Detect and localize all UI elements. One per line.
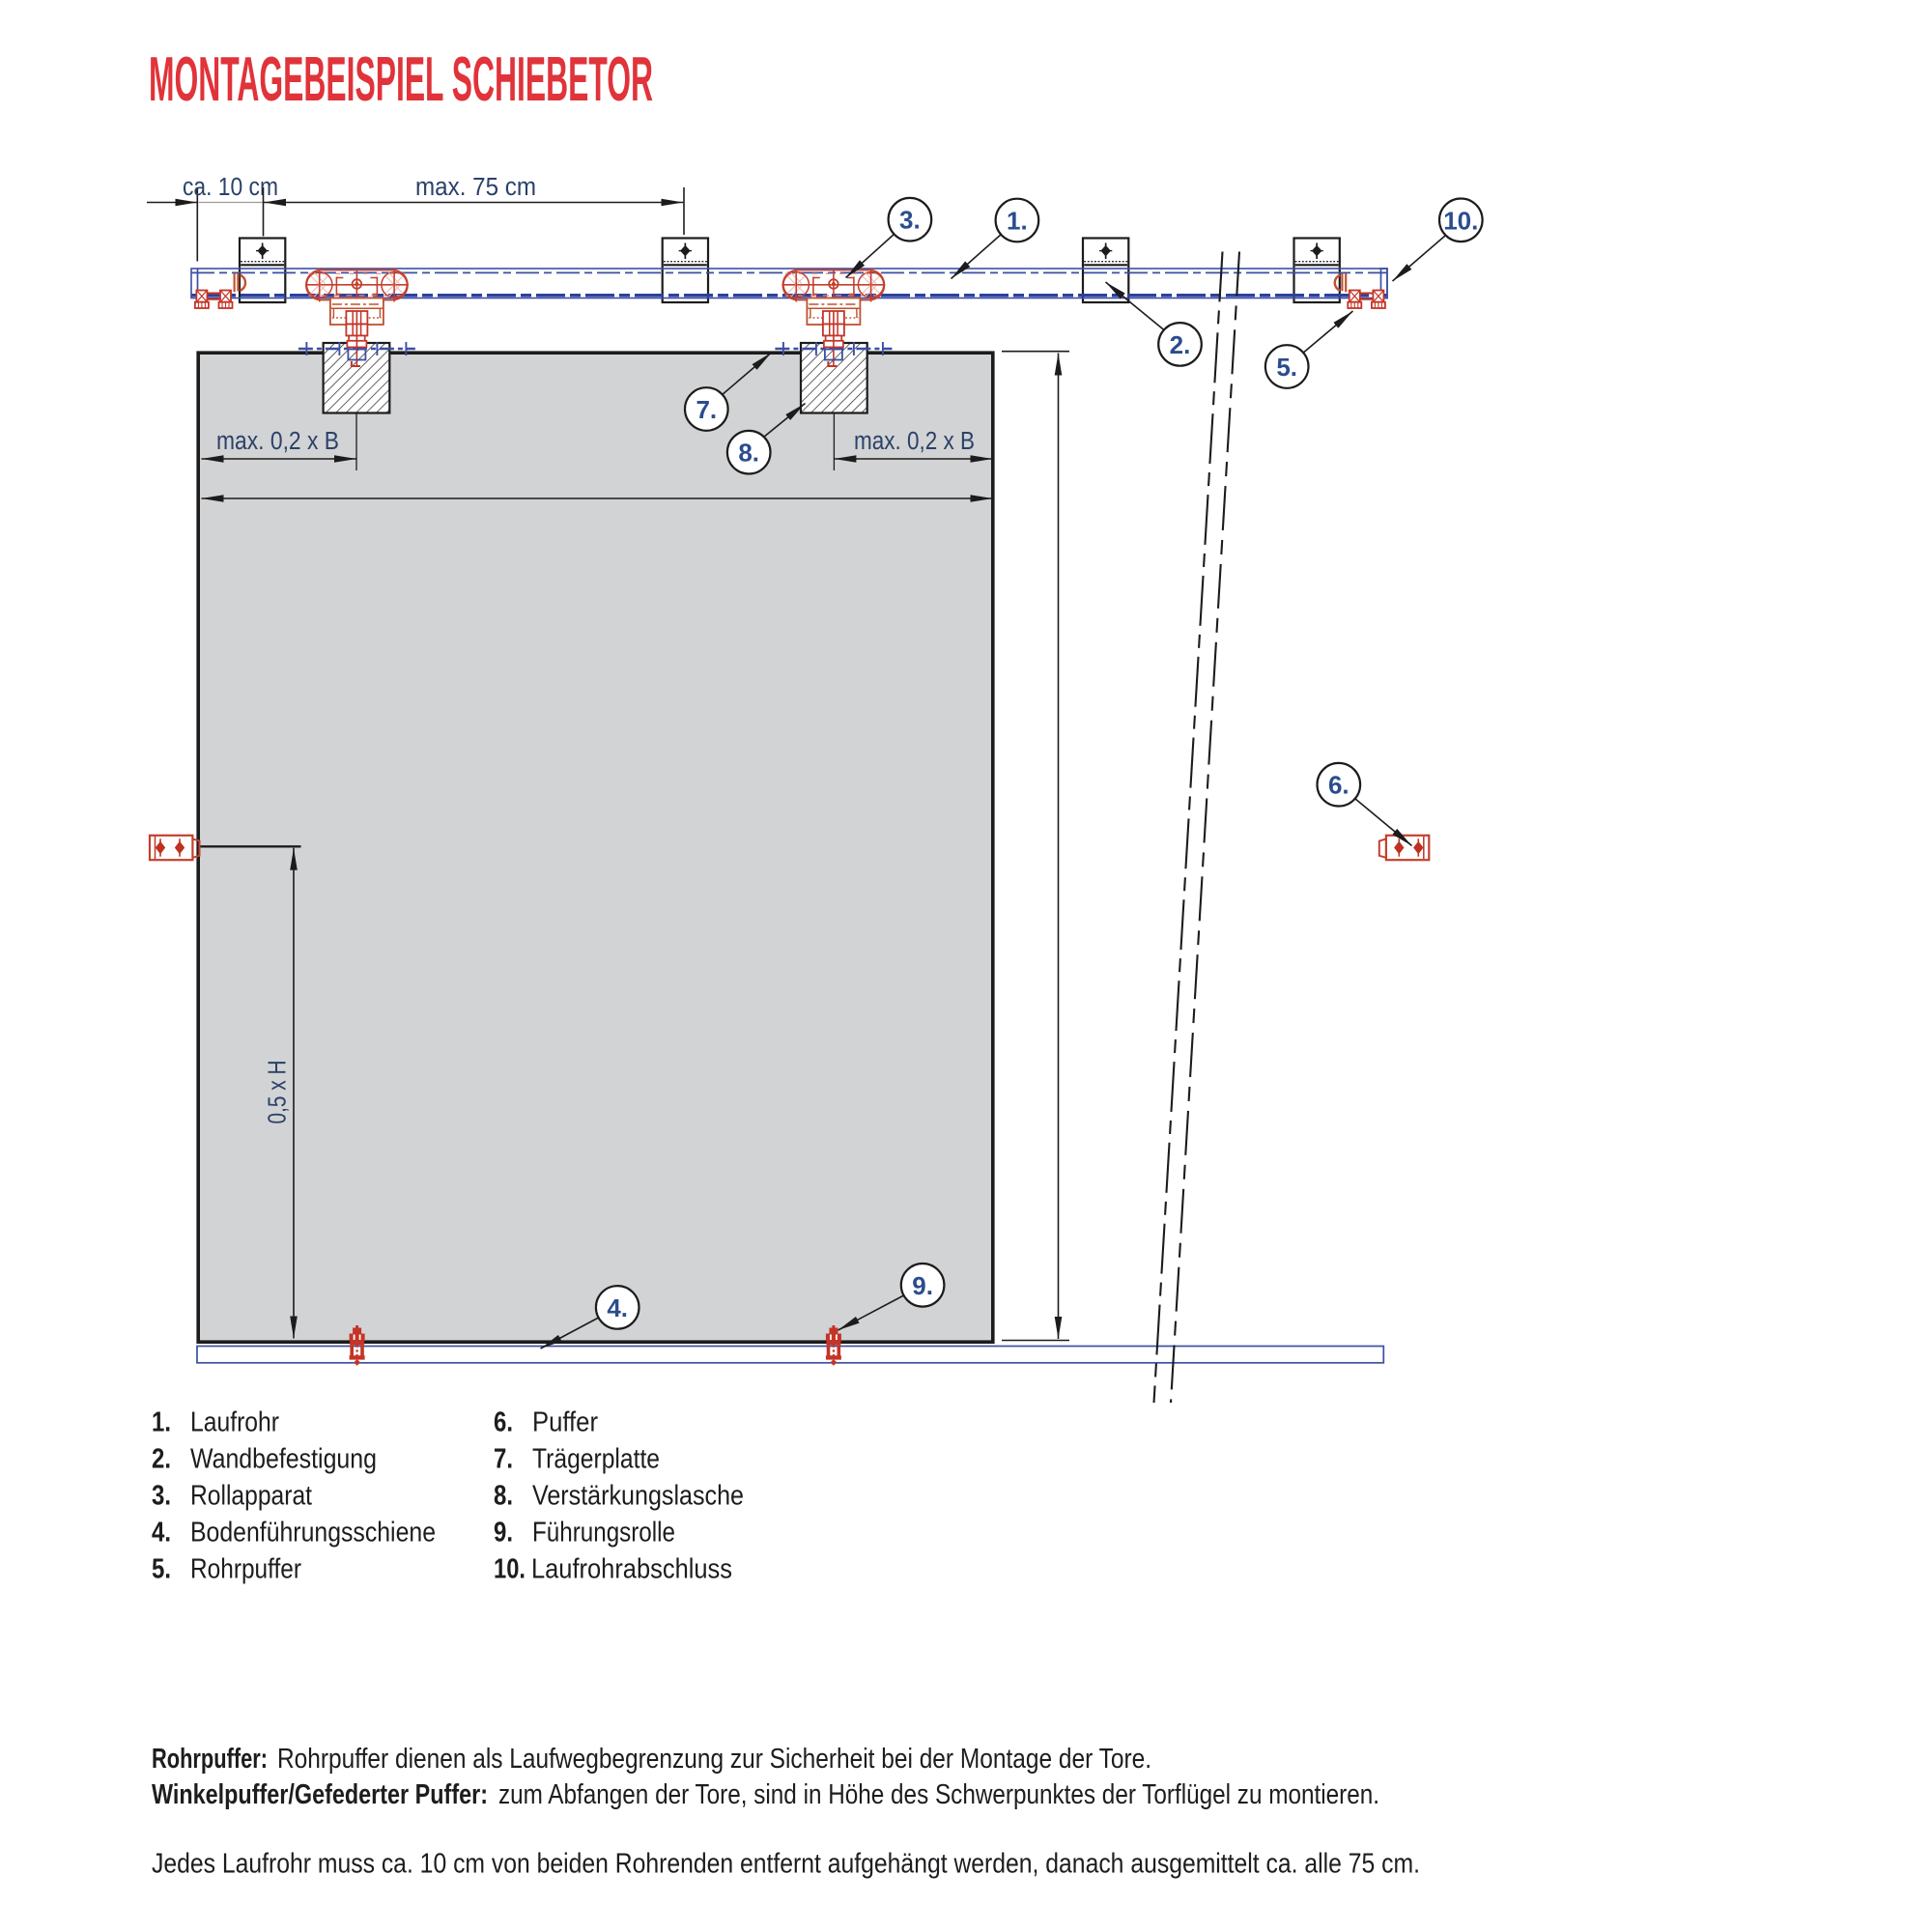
svg-text:Winkelpuffer/Gefederter Puffer: Winkelpuffer/Gefederter Puffer:zum Abfan… [152,1779,1379,1810]
svg-text:max. 0,2 x B: max. 0,2 x B [216,428,339,455]
svg-text:6.: 6. [494,1407,513,1438]
svg-text:3.: 3. [152,1481,171,1512]
svg-text:Jedes Laufrohr muss ca. 10 cm: Jedes Laufrohr muss ca. 10 cm von beiden… [152,1849,1420,1880]
svg-text:7.: 7. [494,1444,513,1475]
svg-text:max. 0,2 x B: max. 0,2 x B [854,428,975,455]
svg-text:9.: 9. [494,1518,513,1548]
svg-text:Wandbefestigung: Wandbefestigung [190,1444,377,1475]
svg-text:10.: 10. [1443,206,1478,235]
svg-text:2.: 2. [1170,330,1191,359]
svg-text:Bodenführungsschiene: Bodenführungsschiene [190,1518,436,1548]
svg-text:MONTAGEBEISPIEL SCHIEBETOR: MONTAGEBEISPIEL SCHIEBETOR [149,43,653,114]
svg-text:6.: 6. [1328,771,1350,800]
svg-text:5.: 5. [152,1554,171,1585]
svg-text:8.: 8. [738,439,759,468]
svg-text:Rohrpuffer:Rohrpuffer dienen a: Rohrpuffer:Rohrpuffer dienen als Laufweg… [152,1744,1151,1775]
svg-text:0,5 x H: 0,5 x H [265,1061,292,1124]
svg-text:Führungsrolle: Führungsrolle [532,1518,675,1548]
svg-text:4.: 4. [152,1518,171,1548]
svg-text:Laufrohr: Laufrohr [190,1407,279,1438]
svg-text:7.: 7. [696,395,717,424]
svg-text:8.: 8. [494,1481,513,1512]
svg-text:10.: 10. [494,1554,526,1585]
svg-text:Rohrpuffer: Rohrpuffer [190,1554,301,1585]
svg-text:Trägerplatte: Trägerplatte [532,1444,660,1475]
svg-text:Puffer: Puffer [532,1407,598,1438]
svg-text:Verstärkungslasche: Verstärkungslasche [532,1481,744,1512]
svg-text:max. 75 cm: max. 75 cm [415,174,536,201]
svg-text:Laufrohrabschluss: Laufrohrabschluss [531,1554,732,1585]
svg-text:3.: 3. [899,206,921,235]
svg-text:1.: 1. [152,1407,171,1438]
svg-text:5.: 5. [1276,353,1297,382]
svg-text:1.: 1. [1007,207,1028,236]
svg-text:2.: 2. [152,1444,171,1475]
svg-text:4.: 4. [607,1293,628,1322]
svg-text:Rollapparat: Rollapparat [190,1481,312,1512]
svg-text:9.: 9. [912,1271,933,1300]
